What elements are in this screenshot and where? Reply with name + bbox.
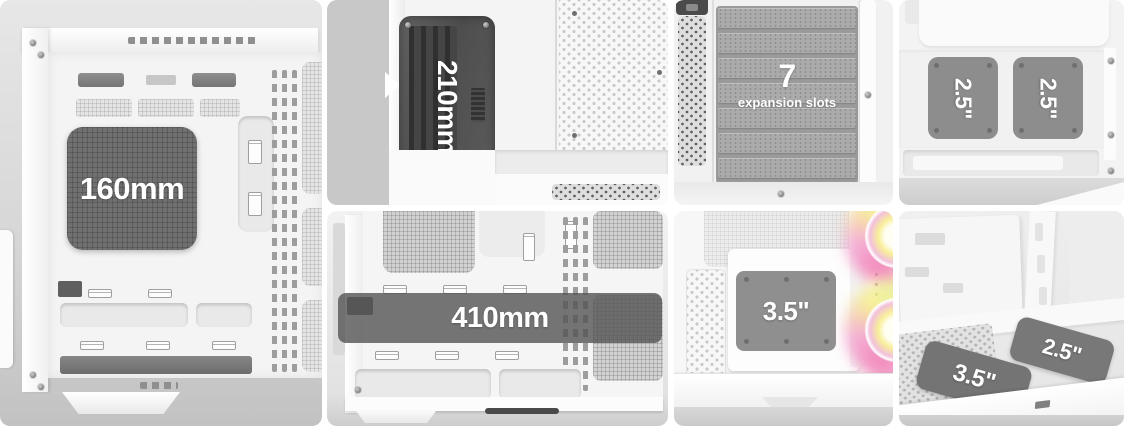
screw-hole <box>1072 63 1077 68</box>
screw-hole <box>744 277 749 282</box>
cable-bar-vents <box>292 70 297 372</box>
hdd-label: 3.5" <box>763 298 809 324</box>
side-rail <box>1104 48 1116 160</box>
standoff-slot <box>148 289 172 298</box>
screw-hole <box>784 339 789 344</box>
expansion-label-wrap: 7 expansion slots <box>716 52 858 116</box>
front-mesh-column <box>302 300 322 372</box>
cable-cutout <box>78 73 124 87</box>
top-recess <box>479 211 545 257</box>
screw-hole <box>934 63 939 68</box>
blurred-background <box>327 0 389 205</box>
front-mesh-column <box>302 62 322 194</box>
ssd-mount-label: 2.5" <box>952 78 975 119</box>
floor-ssd-label: 2.5" <box>1040 335 1084 367</box>
screw-hole <box>824 339 829 344</box>
panel-ssd-mounts: 2.5" 2.5" <box>899 0 1124 205</box>
psu-clearance-label: 210mm <box>433 60 461 154</box>
screw-dot <box>778 191 784 197</box>
panel-gpu-clearance: 410mm <box>327 211 668 426</box>
cable-bar-vents <box>282 70 287 372</box>
psu-shroud-recess <box>499 369 581 399</box>
vent-mesh <box>200 99 240 117</box>
top-tab <box>905 0 919 24</box>
screw-hole <box>784 277 789 282</box>
standoff-slot <box>80 341 104 350</box>
screw-hole <box>934 128 939 133</box>
cpu-clearance-label: 160mm <box>80 173 184 204</box>
cable-cutout <box>192 73 236 87</box>
ssd-mount-overlay: 2.5" <box>928 57 998 139</box>
screw-dot <box>572 11 577 16</box>
case-foot <box>62 392 180 414</box>
psu-shroud-recess <box>196 303 252 327</box>
tray-cutout <box>943 283 963 293</box>
bottom-cutout <box>60 356 252 374</box>
screw-hole <box>1019 128 1024 133</box>
screw-dot <box>38 384 44 390</box>
floor-hdd-label: 3.5" <box>950 361 998 396</box>
psu-shroud-recess <box>60 303 188 327</box>
groove-slot <box>913 156 1063 170</box>
standoff-slot <box>375 351 399 360</box>
shroud-mesh-strip <box>552 184 660 200</box>
slot-cover <box>718 133 856 153</box>
cpu-clearance-overlay: 160mm <box>67 127 197 250</box>
screw-hole <box>1072 128 1077 133</box>
grommet-slot <box>248 140 262 164</box>
case-foot <box>353 407 439 423</box>
screw-dot <box>1108 58 1114 64</box>
standoff-slot <box>435 351 459 360</box>
panel-cpu-cooler-clearance: 160mm <box>0 0 322 426</box>
expansion-count-label: 7 <box>778 60 795 92</box>
gpu-clearance-label: 410mm <box>451 304 548 333</box>
slot-cover <box>718 8 856 28</box>
shroud-shelf <box>495 150 668 174</box>
screw-dot <box>572 133 577 138</box>
strut-slot <box>1037 255 1045 273</box>
standoff-slot <box>212 341 236 350</box>
standoff-slot <box>146 341 170 350</box>
expansion-caption-label: expansion slots <box>738 96 836 109</box>
screw-hole <box>987 128 992 133</box>
floor-shadow <box>899 415 1124 426</box>
front-mesh-column <box>302 208 322 286</box>
top-bracket <box>146 75 176 85</box>
rear-hex-vent <box>678 16 706 166</box>
screw-hole <box>987 63 992 68</box>
screw-dot <box>38 52 44 58</box>
side-glass-area <box>1069 211 1124 311</box>
screw-hole <box>824 277 829 282</box>
psu-shroud-recess <box>355 369 491 399</box>
screw-dot <box>355 387 361 393</box>
front-hex-column <box>686 269 726 377</box>
screw-dot <box>30 372 36 378</box>
standoff-slot <box>88 289 112 298</box>
panel-seam <box>555 0 557 150</box>
front-mesh-block <box>593 211 663 269</box>
grommet-slot <box>523 233 535 261</box>
strut-slot <box>1035 223 1043 241</box>
rear-corner-notch <box>686 4 698 11</box>
vent-mesh <box>76 99 132 117</box>
top-plate <box>919 0 1109 46</box>
screw-dot <box>30 40 36 46</box>
ssd-mount-label: 2.5" <box>1037 78 1060 119</box>
floor-shadow <box>674 407 893 426</box>
top-mesh <box>383 211 475 273</box>
case-front-frame <box>22 28 48 392</box>
screw-dot <box>1108 168 1114 174</box>
panel-floor-mounts: 2.5" 3.5" <box>899 211 1124 426</box>
glass-door-edge <box>0 230 13 368</box>
screw-dot <box>657 70 662 75</box>
standoff-slot <box>495 351 519 360</box>
panel-seam <box>712 0 714 182</box>
feature-grid: 160mm 2 <box>0 0 1124 426</box>
ssd-mount-overlay: 2.5" <box>1013 57 1083 139</box>
tray-cutout <box>915 233 945 245</box>
panel-expansion-slots: 7 expansion slots <box>674 0 893 205</box>
grommet-slot <box>248 192 262 216</box>
screw-hole <box>1019 63 1024 68</box>
slot-cover <box>718 33 856 53</box>
cable-bar-vents <box>272 70 277 372</box>
io-cutout <box>58 281 82 297</box>
panel-psu-clearance: 210mm <box>327 0 668 205</box>
strut-slot <box>1039 287 1047 305</box>
screw-dot <box>865 92 871 98</box>
case-bottom-front <box>389 150 495 205</box>
top-vent-slots <box>128 37 256 44</box>
vent-mesh <box>138 99 194 117</box>
fan-mount-plate <box>559 0 668 150</box>
tray-cutout <box>905 267 929 277</box>
screw-hole <box>744 339 749 344</box>
slot-cover <box>718 158 856 178</box>
rubber-foot-strip <box>485 408 559 414</box>
panel-hdd-tray: 3.5" <box>674 211 893 426</box>
gpu-clearance-overlay: 410mm <box>338 293 662 343</box>
screw-dot <box>1108 132 1114 138</box>
bottom-vent-slots <box>140 382 178 389</box>
